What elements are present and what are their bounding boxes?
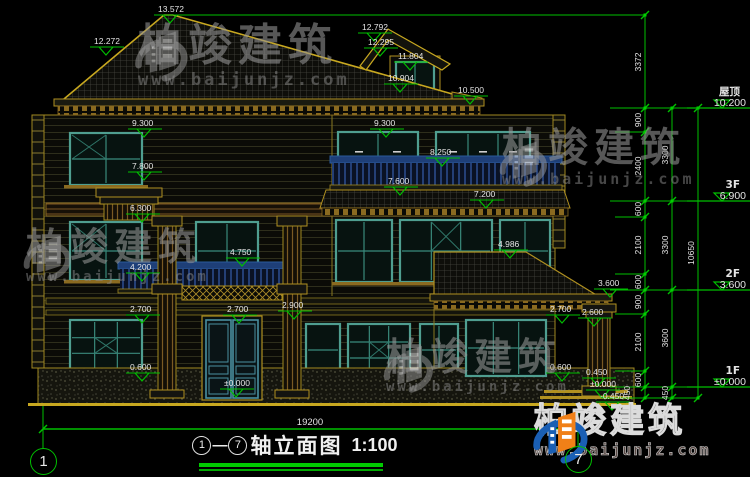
title-axis-start: 1 — [192, 436, 211, 455]
svg-text:0.600: 0.600 — [550, 362, 572, 372]
svg-text:±0.000: ±0.000 — [590, 379, 616, 389]
svg-text:3.600: 3.600 — [598, 278, 620, 288]
level-value: 6.900 — [720, 190, 746, 202]
dim-node — [671, 107, 674, 110]
dim-node — [644, 107, 647, 110]
fascia — [54, 99, 484, 106]
dim-value: 2100 — [633, 235, 643, 254]
overall-dim-value: 19200 — [297, 417, 323, 428]
dim-value: 2100 — [633, 332, 643, 351]
dim-node — [644, 289, 647, 292]
dim-node — [671, 397, 674, 400]
dim-value: 600 — [633, 373, 643, 387]
level-value: 10.200 — [714, 97, 746, 109]
axis-bubble-1: 1 — [30, 448, 57, 475]
svg-text:2.700: 2.700 — [550, 304, 572, 314]
cad-canvas: 3372900240060021006009002100600450330033… — [0, 0, 750, 477]
axis-bubble-7: 7 — [565, 446, 592, 473]
building-elevation — [28, 15, 636, 406]
drawing-title: 1 — 7 轴立面图 1:100 — [150, 430, 440, 471]
dim-value: 900 — [633, 113, 643, 127]
svg-text:0.450: 0.450 — [586, 367, 608, 377]
svg-text:2.700: 2.700 — [227, 304, 249, 314]
window — [70, 133, 142, 185]
dim-value: 600 — [633, 275, 643, 289]
dentil-band — [58, 106, 480, 115]
svg-text:9.300: 9.300 — [374, 118, 396, 128]
svg-text:13.572: 13.572 — [158, 4, 184, 14]
dim-node — [697, 397, 700, 400]
svg-text:0.600: 0.600 — [130, 362, 152, 372]
dim-node — [671, 386, 674, 389]
svg-text:10.500: 10.500 — [458, 85, 484, 95]
dim-node — [644, 386, 647, 389]
title-text: 轴立面图 — [250, 430, 342, 460]
svg-text:-0.450: -0.450 — [600, 391, 624, 401]
dim-value: 900 — [633, 295, 643, 309]
window-sill — [332, 282, 396, 286]
dim-node — [671, 289, 674, 292]
svg-text:4.200: 4.200 — [130, 262, 152, 272]
dim-value: 10650 — [686, 241, 696, 265]
dim-value: 3300 — [660, 235, 670, 254]
svg-text:4.750: 4.750 — [230, 247, 252, 257]
dim-value: 3300 — [660, 145, 670, 164]
level-value: ±0.000 — [714, 376, 746, 388]
svg-text:±0.000: ±0.000 — [224, 378, 250, 388]
dim-node — [644, 273, 647, 276]
dim-node — [644, 370, 647, 373]
dim-value: 2400 — [633, 156, 643, 175]
dim-value: 3600 — [660, 328, 670, 347]
dim-node — [671, 200, 674, 203]
svg-text:2.700: 2.700 — [130, 304, 152, 314]
svg-text:4.986: 4.986 — [498, 239, 520, 249]
svg-text:2.900: 2.900 — [282, 300, 304, 310]
title-scale: 1:100 — [351, 435, 397, 456]
svg-text:7.800: 7.800 — [132, 161, 154, 171]
chimney — [96, 188, 162, 220]
svg-text:12.295: 12.295 — [368, 37, 394, 47]
title-axis-end: 7 — [228, 436, 247, 455]
window — [466, 320, 546, 376]
corner-pilaster-left — [32, 115, 44, 368]
dim-node — [644, 131, 647, 134]
svg-text:12.792: 12.792 — [362, 22, 388, 32]
dim-value: 3372 — [633, 52, 643, 71]
dim-node — [644, 200, 647, 203]
dim-value: 600 — [633, 202, 643, 216]
svg-text:7.600: 7.600 — [388, 176, 410, 186]
brand-logo: 柏竣建筑 www.baijunjz.com — [528, 404, 711, 459]
window — [336, 220, 392, 282]
dim-node — [644, 313, 647, 316]
svg-text:12.272: 12.272 — [94, 36, 120, 46]
dim-node — [644, 397, 647, 400]
dim-node — [644, 216, 647, 219]
svg-text:9.300: 9.300 — [132, 118, 154, 128]
svg-text:11.804: 11.804 — [398, 51, 424, 61]
title-underline — [199, 463, 383, 467]
floor-band-3f — [46, 203, 332, 216]
svg-text:8.250: 8.250 — [430, 147, 452, 157]
title-dash: — — [212, 437, 227, 454]
main-roof — [54, 15, 484, 115]
level-value: 3.600 — [720, 279, 746, 291]
title-underline-2 — [199, 469, 383, 471]
svg-text:6.300: 6.300 — [130, 203, 152, 213]
dim-node — [644, 14, 647, 17]
svg-text:10.904: 10.904 — [388, 73, 414, 83]
svg-text:2.600: 2.600 — [582, 307, 604, 317]
balcony-3f — [320, 156, 570, 216]
svg-text:7.200: 7.200 — [474, 189, 496, 199]
dim-value: 450 — [660, 386, 670, 400]
